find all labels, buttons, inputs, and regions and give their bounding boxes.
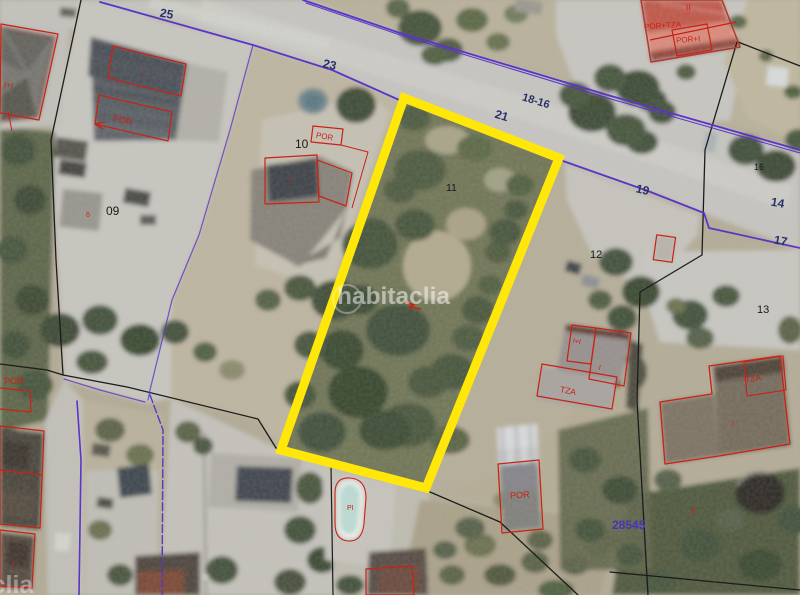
svg-text:11: 11 [446, 182, 457, 194]
svg-text:12: 12 [590, 249, 602, 261]
svg-text:I: I [2, 469, 4, 478]
svg-text:6: 6 [86, 212, 90, 219]
svg-text:I: I [289, 179, 291, 186]
svg-text:I: I [732, 421, 734, 428]
svg-text:PI: PI [347, 505, 354, 512]
svg-text:28545: 28545 [612, 518, 646, 532]
svg-text:I+I: I+I [3, 80, 14, 90]
svg-text:25: 25 [159, 6, 175, 22]
svg-text:POR+I: POR+I [676, 34, 701, 45]
svg-text:17: 17 [773, 233, 789, 249]
svg-text:14: 14 [770, 195, 786, 211]
svg-text:13: 13 [757, 304, 769, 316]
svg-text:9: 9 [691, 507, 696, 516]
svg-text:II: II [686, 3, 690, 12]
svg-text:09: 09 [106, 204, 120, 218]
svg-text:10: 10 [295, 137, 309, 151]
svg-text:habitaclia: habitaclia [0, 571, 34, 595]
svg-text:POR: POR [4, 376, 24, 386]
svg-text:16: 16 [754, 162, 764, 172]
svg-text:habitaclia: habitaclia [337, 283, 450, 310]
svg-text:POR: POR [510, 489, 531, 500]
svg-text:I: I [12, 558, 14, 567]
